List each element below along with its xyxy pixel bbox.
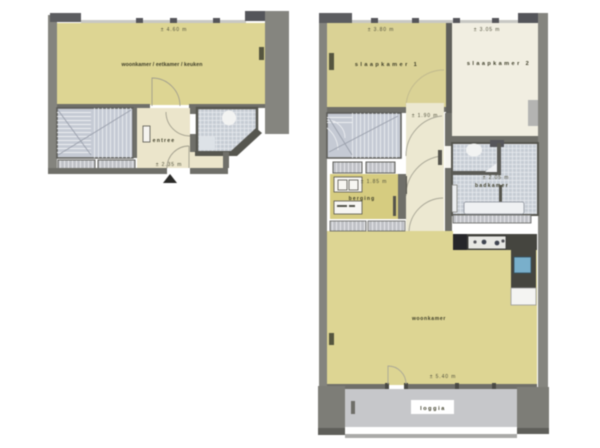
svg-text:slaapkamer 2: slaapkamer 2 [467, 61, 531, 67]
svg-text:± 5.40 m: ± 5.40 m [430, 374, 457, 380]
svg-text:woonkamer: woonkamer [411, 316, 446, 322]
svg-text:badkamer: badkamer [475, 183, 509, 189]
svg-text:± 4.60 m: ± 4.60 m [161, 27, 188, 33]
svg-text:loggia: loggia [420, 406, 446, 412]
svg-text:± 2.35 m: ± 2.35 m [156, 162, 183, 168]
svg-text:± 2.05 m: ± 2.05 m [483, 175, 510, 181]
svg-text:slaapkamer 1: slaapkamer 1 [355, 62, 419, 68]
svg-text:woonkamer / eetkamer / keuken: woonkamer / eetkamer / keuken [120, 62, 202, 68]
svg-text:± 1.85 m: ± 1.85 m [361, 179, 388, 185]
svg-text:± 3.80 m: ± 3.80 m [368, 27, 395, 33]
svg-text:± 1.90 m: ± 1.90 m [412, 113, 439, 119]
svg-text:± 3.05 m: ± 3.05 m [474, 27, 501, 33]
svg-text:entree: entree [153, 138, 176, 144]
svg-text:berging: berging [349, 196, 376, 202]
